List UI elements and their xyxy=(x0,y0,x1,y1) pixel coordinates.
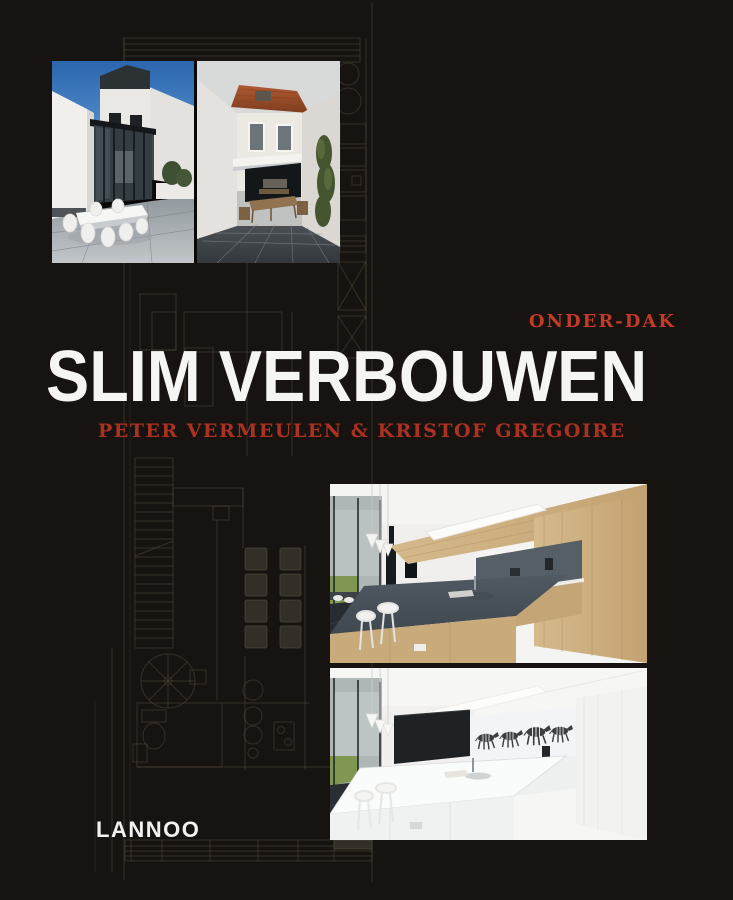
series-label: ONDER-DAK xyxy=(529,311,676,332)
photo-exterior-glass-extension xyxy=(52,61,194,263)
publisher-logo: LANNOO xyxy=(96,817,200,843)
authors-line: PETER VERMEULEN & KRISTOF GREGOIRE xyxy=(98,420,626,442)
photo-panel-kitchens xyxy=(330,484,647,840)
book-cover: ONDER-DAK SLIM VERBOUWEN PETER VERMEULEN… xyxy=(0,0,733,900)
photo-kitchen-wood xyxy=(330,484,647,663)
photo-exterior-row-house xyxy=(197,61,340,263)
photo-panel-exteriors xyxy=(52,61,340,263)
photo-kitchen-white-zebra xyxy=(330,668,647,840)
cover-title: SLIM VERBOUWEN xyxy=(46,341,647,413)
